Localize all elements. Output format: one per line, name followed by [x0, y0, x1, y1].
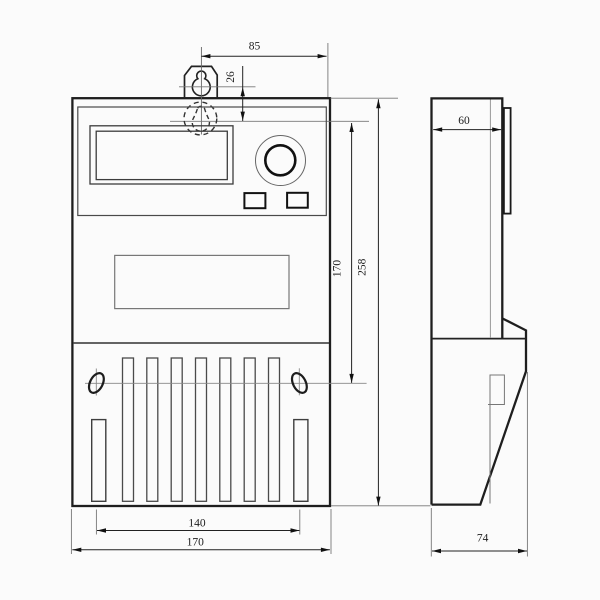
svg-text:170: 170 [187, 537, 205, 549]
svg-text:258: 258 [356, 258, 368, 276]
svg-text:170: 170 [332, 260, 344, 278]
svg-text:60: 60 [458, 115, 470, 127]
svg-text:140: 140 [188, 518, 206, 530]
svg-text:85: 85 [249, 41, 261, 53]
svg-text:26: 26 [225, 71, 237, 83]
svg-text:74: 74 [477, 533, 489, 545]
